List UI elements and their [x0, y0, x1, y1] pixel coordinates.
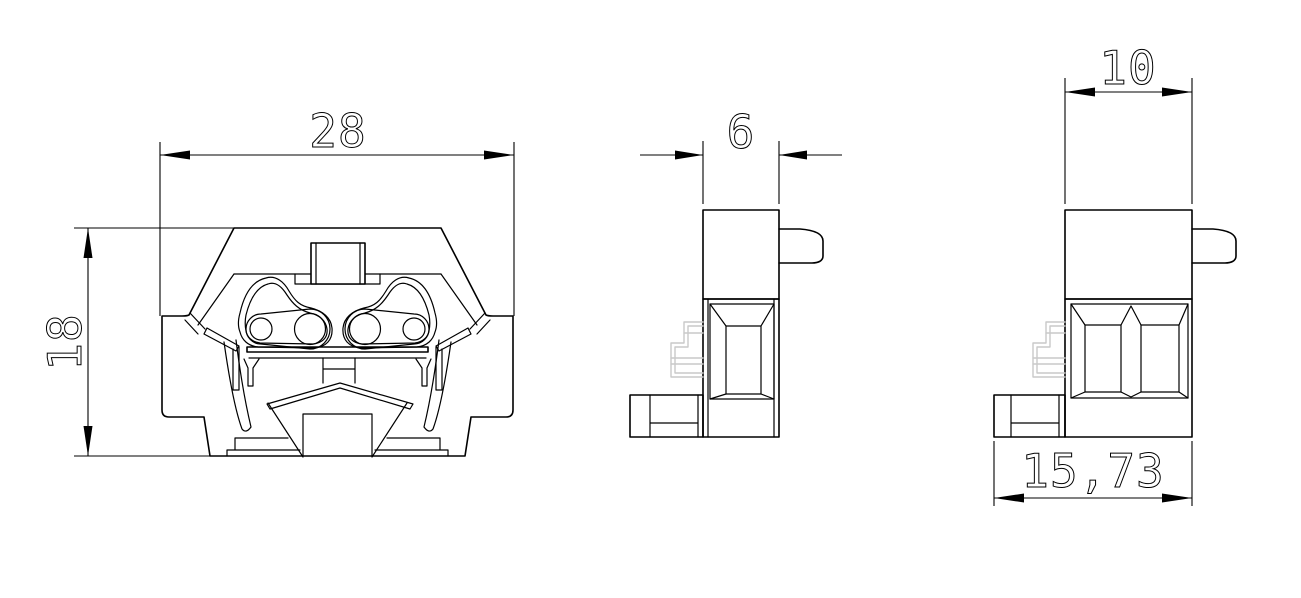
end-latch-tab — [1192, 229, 1236, 263]
dim-label: 10 — [1099, 41, 1156, 95]
side-lower-body — [703, 299, 779, 437]
arrowhead — [1162, 88, 1192, 97]
front-right-details — [343, 274, 490, 457]
end-lower-body — [1065, 299, 1192, 437]
base-ledge — [227, 438, 300, 456]
clamp-strip — [204, 328, 239, 351]
end-mounting-foot — [994, 395, 1065, 437]
flexure-arm — [224, 340, 251, 431]
arrowhead — [484, 151, 514, 160]
din-clip-phantom — [1033, 322, 1065, 377]
side-latch-tab — [779, 229, 823, 263]
dim-label: 6 — [727, 105, 756, 159]
extension-line — [1065, 78, 1192, 204]
front-view — [162, 228, 513, 457]
arrowhead — [675, 151, 703, 160]
arrowhead — [779, 151, 807, 160]
busbar — [247, 347, 428, 358]
wire-hole-small — [250, 318, 272, 340]
dim-label: 15,73 — [1021, 444, 1164, 498]
arrowhead — [84, 426, 93, 456]
center-foot — [303, 414, 372, 456]
front-left-details — [185, 274, 332, 457]
extension-line — [74, 228, 234, 456]
arrowhead — [994, 494, 1024, 503]
spring-clamp-outline — [239, 277, 333, 348]
dimension-side-depth: 6 — [640, 105, 842, 204]
din-clip-phantom — [671, 322, 703, 377]
side-clamp-pocket — [710, 304, 774, 399]
dimension-end-base-width: 15,73 — [994, 441, 1192, 506]
actuation-button — [311, 243, 365, 284]
side-upper-body — [703, 210, 779, 299]
dimension-end-width: 10 — [1065, 41, 1192, 204]
dim-label: 18 — [38, 313, 92, 370]
side-view — [630, 210, 823, 437]
wire-hole-large — [295, 314, 326, 345]
wire-slot — [244, 359, 259, 386]
hood-wall — [198, 274, 234, 325]
arrowhead — [1065, 88, 1095, 97]
arrowhead — [160, 151, 190, 160]
end-view — [994, 210, 1236, 437]
spring-clamp-inner — [245, 283, 327, 344]
center-wedge — [267, 358, 413, 409]
extension-line — [160, 142, 514, 316]
arrowhead — [1162, 494, 1192, 503]
arrowhead — [84, 228, 93, 258]
end-clamp-pockets — [1071, 304, 1188, 398]
drawing-sheet: 28 18 6 10 — [0, 0, 1301, 598]
technical-drawing: 28 18 6 10 — [0, 0, 1301, 598]
dim-label: 28 — [309, 104, 366, 158]
end-upper-body — [1065, 210, 1192, 299]
base-funnel — [268, 403, 303, 457]
side-mounting-foot — [630, 395, 703, 437]
